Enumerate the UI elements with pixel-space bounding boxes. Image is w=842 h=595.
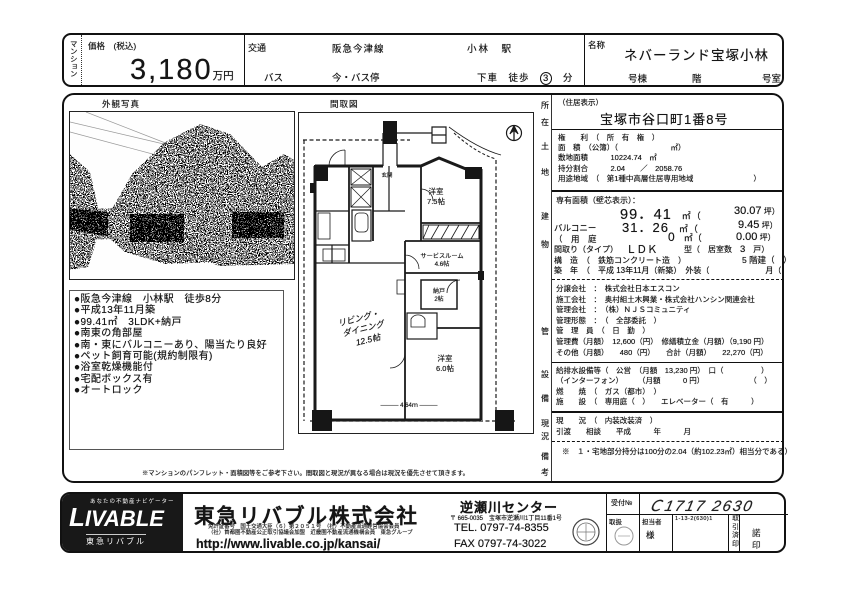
svg-text:玄関: 玄関 [381,171,393,179]
svg-text:6.0帖: 6.0帖 [436,363,454,373]
svg-text:4.6帖: 4.6帖 [435,260,450,268]
svg-text:納戸: 納戸 [433,287,445,295]
svg-text:洋室: 洋室 [438,353,453,363]
svg-text:サービスルーム: サービスルーム [420,252,463,260]
svg-text:――― 4.64ｍ ―――: ――― 4.64ｍ ――― [380,403,437,409]
svg-text:洋室: 洋室 [429,186,444,196]
svg-text:2帖: 2帖 [434,295,443,303]
svg-text:7.5帖: 7.5帖 [427,196,445,206]
